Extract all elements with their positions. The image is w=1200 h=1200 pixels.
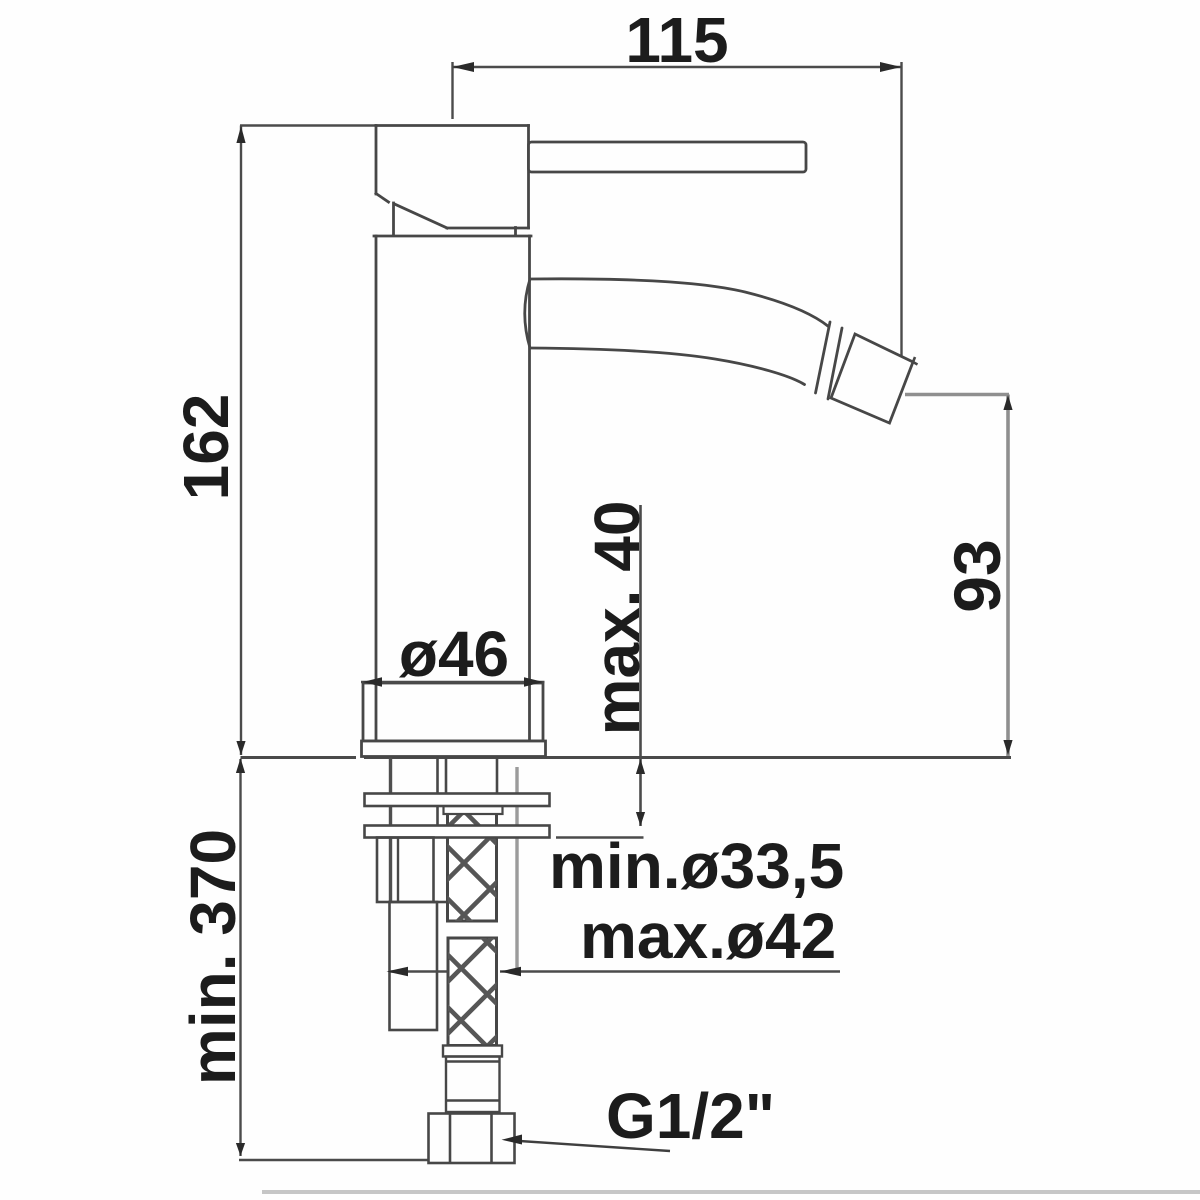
svg-text:G1/2": G1/2" — [606, 1080, 775, 1152]
svg-text:min. 370: min. 370 — [177, 829, 249, 1085]
svg-text:162: 162 — [170, 394, 242, 501]
svg-text:93: 93 — [940, 539, 1014, 612]
svg-text:115: 115 — [625, 4, 728, 76]
svg-text:max. 40: max. 40 — [581, 501, 653, 736]
svg-text:min.ø33,5: min.ø33,5 — [549, 830, 844, 902]
svg-text:ø46: ø46 — [399, 618, 509, 690]
svg-text:max.ø42: max.ø42 — [580, 900, 836, 972]
